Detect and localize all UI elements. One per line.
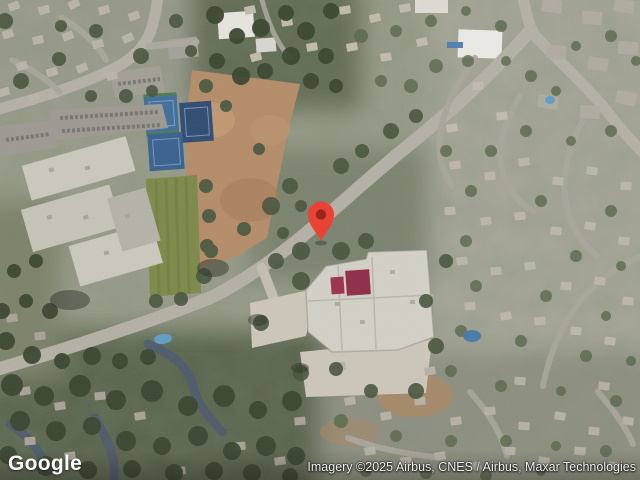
imagery-attribution: Imagery ©2025 Airbus, CNES / Airbus, Max… (307, 460, 636, 474)
satellite-imagery (0, 0, 640, 480)
map-viewport[interactable]: Google Imagery ©2025 Airbus, CNES / Airb… (0, 0, 640, 480)
pin-dot (316, 209, 326, 219)
google-logo[interactable]: Google (8, 452, 82, 476)
image-grain (0, 0, 640, 480)
pin-shadow (315, 241, 327, 246)
